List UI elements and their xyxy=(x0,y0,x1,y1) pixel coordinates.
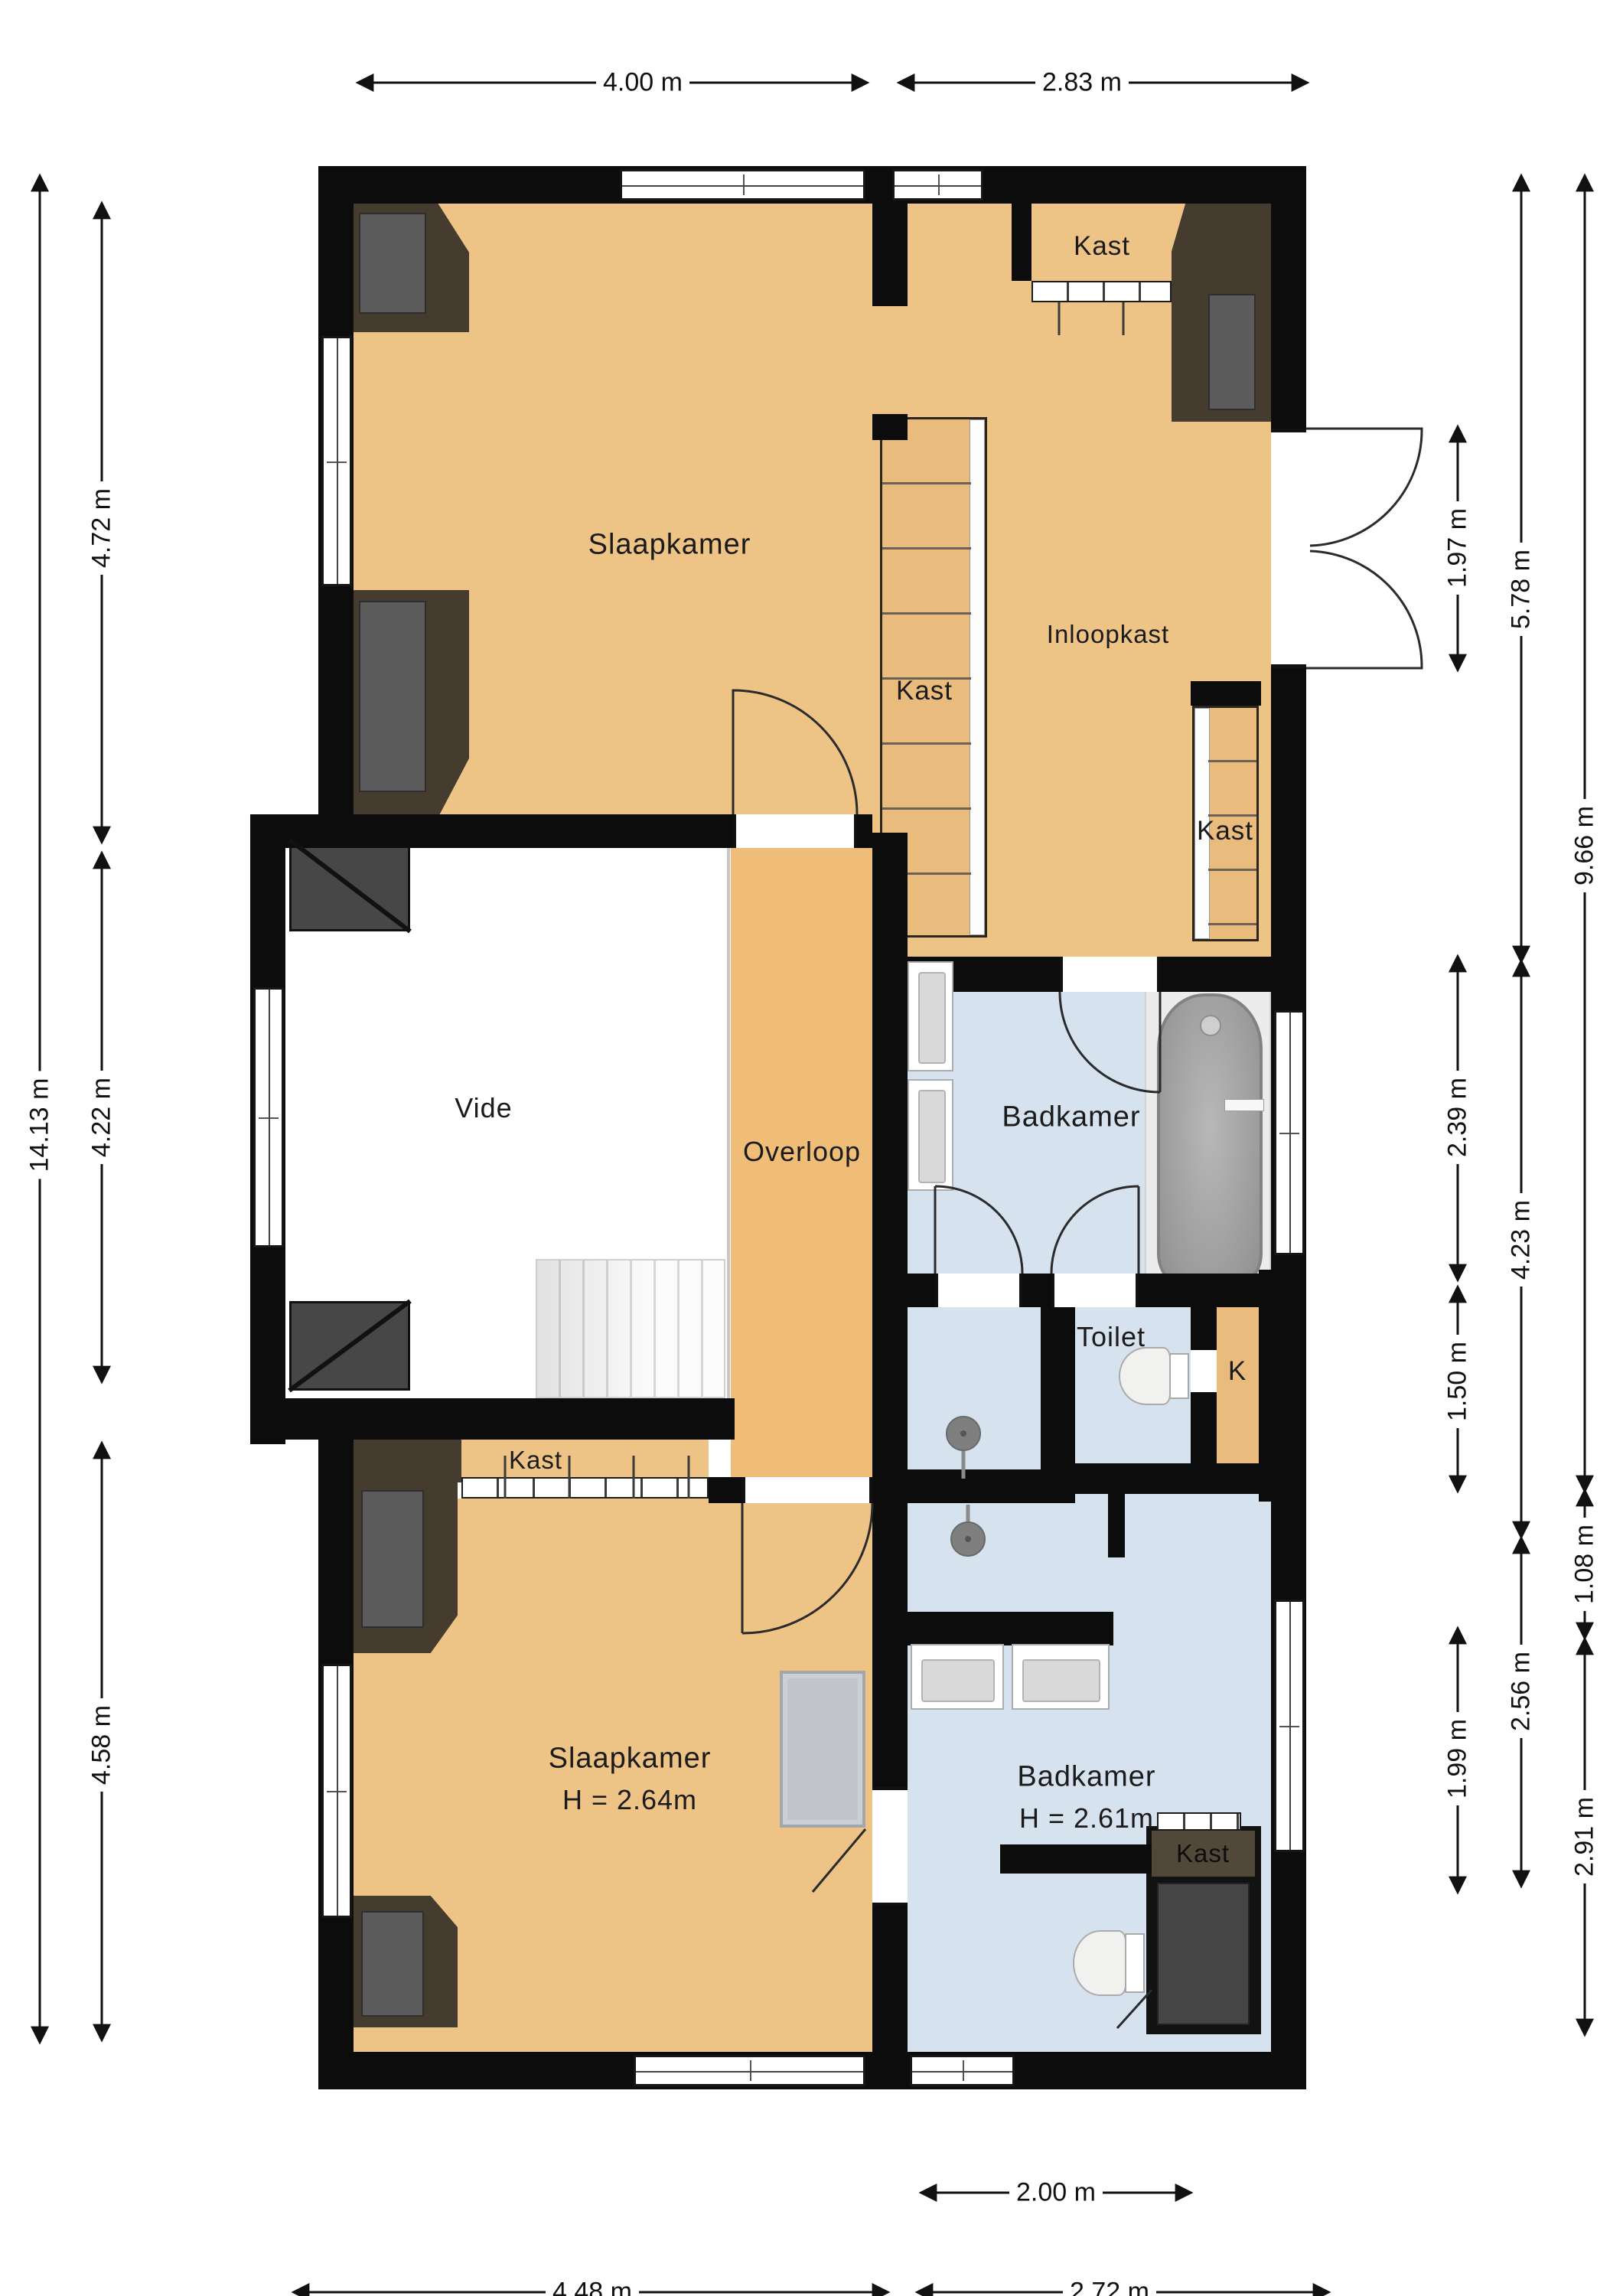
dim-label: 4.23 m xyxy=(1506,1193,1537,1287)
dim-label: 1.97 m xyxy=(1442,501,1474,595)
dim-label: 4.58 m xyxy=(86,1698,118,1792)
door-swing xyxy=(813,1829,865,1892)
room-label-kast-mid: Kast xyxy=(896,676,953,706)
dim-label: 2.56 m xyxy=(1506,1645,1537,1738)
dim-label: 5.78 m xyxy=(1506,543,1537,636)
room-label-kast-bottomleft: Kast xyxy=(509,1446,562,1475)
french-door-swing xyxy=(1306,429,1422,546)
dim-label: 2.72 m xyxy=(1063,2277,1156,2296)
room-label-inloopkast: Inloopkast xyxy=(1047,620,1169,649)
door-swing xyxy=(1051,1186,1139,1274)
room-label-kast-topright: Kast xyxy=(1074,231,1130,262)
dim-label: 1.50 m xyxy=(1442,1335,1474,1428)
dim-label: 4.48 m xyxy=(546,2277,639,2296)
roof-slope-line xyxy=(289,1301,410,1391)
dim-label: 1.08 m xyxy=(1569,1518,1601,1611)
dim-label: 4.22 m xyxy=(86,1071,118,1164)
room-label-badkamer-bottom: Badkamer xyxy=(1017,1761,1155,1794)
dim-label: 14.13 m xyxy=(24,1071,56,1179)
room-label-vide: Vide xyxy=(455,1092,512,1124)
room-label-toilet: Toilet xyxy=(1077,1321,1146,1353)
door-swing xyxy=(1060,992,1160,1092)
door-swing xyxy=(742,1503,872,1633)
shower-head xyxy=(947,1417,980,1479)
room-label-slaapkamer-top: Slaapkamer xyxy=(588,529,751,562)
dim-label: 4.72 m xyxy=(86,481,118,575)
room-label-kast-right: Kast xyxy=(1197,816,1253,846)
dim-label: 2.39 m xyxy=(1442,1071,1474,1164)
dim-label: 2.83 m xyxy=(1035,67,1129,99)
room-label-badkamer-mid: Badkamer xyxy=(1002,1101,1140,1134)
dim-label: 9.66 m xyxy=(1569,799,1601,892)
dim-label: 2.00 m xyxy=(1009,2177,1103,2209)
room-height-slaapkamer-bottom: H = 2.64m xyxy=(562,1784,697,1816)
floorplan: Slaapkamer Kast Inloopkast Kast Kast Vid… xyxy=(0,0,1623,2296)
room-label-k: K xyxy=(1228,1356,1247,1387)
door-swing xyxy=(1117,1990,1152,2028)
room-label-slaapkamer-bottom: Slaapkamer xyxy=(549,1743,712,1776)
door-swing xyxy=(733,690,857,814)
french-door-swing xyxy=(1306,551,1422,668)
room-label-overloop: Overloop xyxy=(743,1136,861,1168)
room-label-kast-bottomright: Kast xyxy=(1176,1839,1230,1868)
shower-head xyxy=(951,1505,985,1556)
dim-label: 1.99 m xyxy=(1442,1712,1474,1805)
dim-label: 2.91 m xyxy=(1569,1790,1601,1883)
door-swing xyxy=(935,1186,1022,1274)
roof-slope-line xyxy=(289,840,410,931)
dim-label: 4.00 m xyxy=(596,67,689,99)
room-height-badkamer-bottom: H = 2.61m xyxy=(1019,1802,1154,1835)
